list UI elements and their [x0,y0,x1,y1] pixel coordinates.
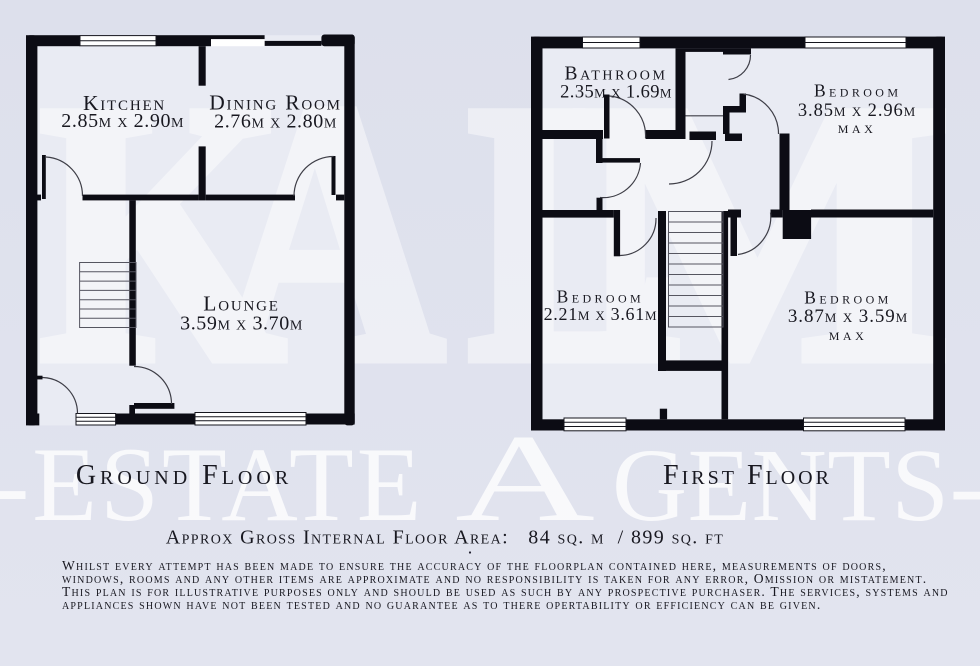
svg-text:Bedroom: Bedroom [814,81,901,101]
svg-text:2.35m x 1.69m: 2.35m x 1.69m [560,83,672,103]
svg-text:max: max [829,325,868,344]
svg-text:First Floor: First Floor [663,460,832,491]
svg-text:3.59m x 3.70m: 3.59m x 3.70m [180,313,303,335]
svg-text:3.87m x 3.59m: 3.87m x 3.59m [788,306,908,327]
svg-text:2.76m x 2.80m: 2.76m x 2.80m [214,111,337,133]
svg-text:2.21m x 3.61m: 2.21m x 3.61m [544,304,658,324]
svg-text:max: max [838,118,877,137]
svg-text:Bathroom: Bathroom [564,64,667,85]
svg-text:Approx Gross Internal Floor Ar: Approx Gross Internal Floor Area: 84 sq.… [166,527,725,549]
svg-text:appliances shown have not been: appliances shown have not been tested an… [62,597,821,612]
svg-text:2.85m x 2.90m: 2.85m x 2.90m [61,110,184,132]
svg-text:Ground Floor: Ground Floor [76,460,292,491]
svg-text:Bedroom: Bedroom [804,288,891,308]
